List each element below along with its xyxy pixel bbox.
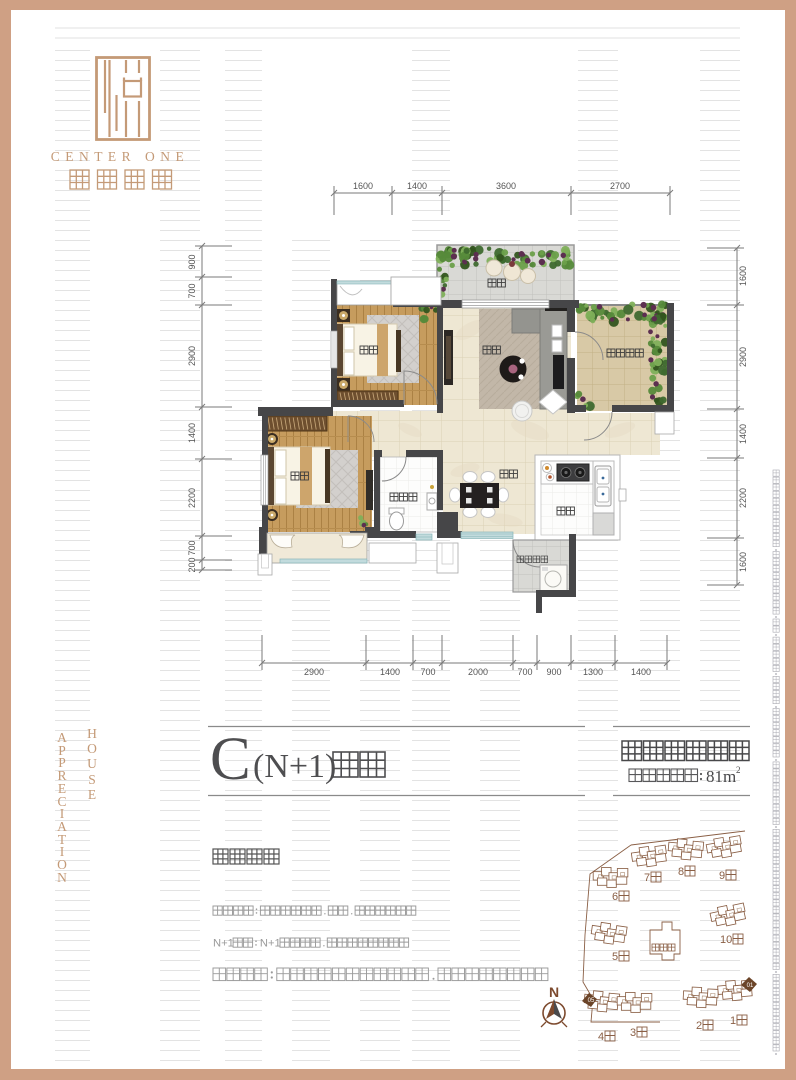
svg-text:700: 700: [187, 283, 197, 298]
svg-text:N: N: [549, 984, 559, 1000]
svg-text:U: U: [87, 756, 97, 771]
svg-text:05: 05: [588, 998, 595, 1004]
svg-text:1400: 1400: [738, 424, 748, 444]
svg-text:200: 200: [187, 557, 197, 572]
svg-text:8: 8: [678, 866, 684, 878]
svg-text:1400: 1400: [631, 667, 651, 677]
svg-text:S: S: [88, 772, 96, 787]
svg-text:5: 5: [612, 951, 618, 963]
svg-text:2700: 2700: [610, 181, 630, 191]
svg-text:CENTER ONE: CENTER ONE: [51, 149, 190, 164]
svg-text:1600: 1600: [353, 181, 373, 191]
svg-text:N: N: [57, 870, 67, 885]
svg-text:2200: 2200: [187, 488, 197, 508]
svg-text:E: E: [88, 787, 96, 802]
svg-text:3600: 3600: [496, 181, 516, 191]
svg-text:(N+1): (N+1): [253, 748, 336, 785]
svg-text:4: 4: [598, 1031, 604, 1043]
svg-text:900: 900: [187, 254, 197, 269]
svg-text:H: H: [87, 726, 97, 741]
svg-text:1400: 1400: [187, 423, 197, 443]
svg-text:1: 1: [730, 1015, 736, 1027]
svg-text:3: 3: [630, 1027, 636, 1039]
svg-text:2: 2: [696, 1020, 702, 1032]
svg-text:81m: 81m: [706, 767, 736, 786]
svg-text:2: 2: [736, 765, 741, 775]
svg-text:700: 700: [420, 667, 435, 677]
svg-text:2200: 2200: [738, 488, 748, 508]
svg-text:2900: 2900: [304, 667, 324, 677]
svg-text:1400: 1400: [407, 181, 427, 191]
svg-text:10: 10: [720, 934, 732, 946]
svg-text:700: 700: [187, 540, 197, 555]
svg-text:2900: 2900: [738, 347, 748, 367]
svg-text:01: 01: [747, 983, 754, 989]
svg-text:1400: 1400: [380, 667, 400, 677]
svg-text:O: O: [87, 741, 97, 756]
svg-text:2000: 2000: [468, 667, 488, 677]
svg-text:900: 900: [546, 667, 561, 677]
svg-text:N+1: N+1: [213, 938, 234, 950]
svg-text:C: C: [210, 726, 251, 793]
svg-text:N+1: N+1: [260, 938, 281, 950]
svg-text:1600: 1600: [738, 552, 748, 572]
svg-text:1300: 1300: [583, 667, 603, 677]
svg-text:9: 9: [719, 870, 725, 882]
svg-text:7: 7: [644, 872, 650, 884]
svg-text:700: 700: [517, 667, 532, 677]
svg-text:2900: 2900: [187, 346, 197, 366]
svg-text:1600: 1600: [738, 266, 748, 286]
svg-text:6: 6: [612, 891, 618, 903]
